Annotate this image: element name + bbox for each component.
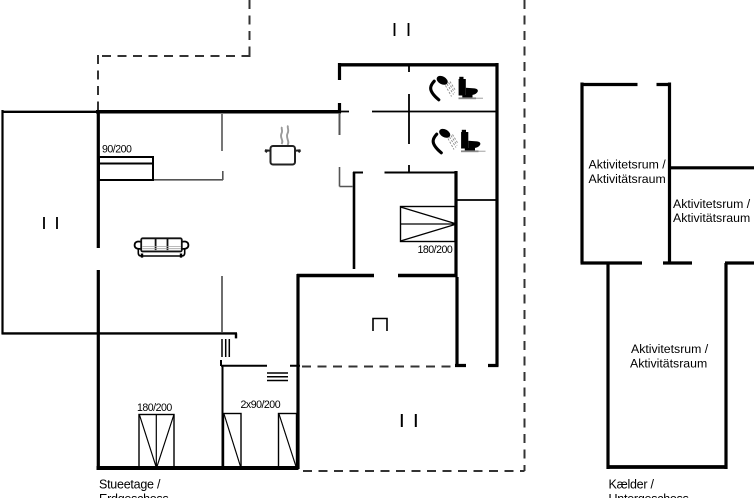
svg-text:Aktivitätsraum: Aktivitätsraum: [589, 172, 666, 186]
svg-text:Aktivitetsrum /: Aktivitetsrum /: [589, 158, 667, 172]
svg-text:Aktivitätsraum: Aktivitätsraum: [630, 357, 707, 371]
svg-text:180/200: 180/200: [418, 244, 453, 256]
svg-text:90/200: 90/200: [102, 143, 132, 155]
svg-text:Erdgeschoss: Erdgeschoss: [99, 492, 169, 498]
svg-text:Aktivitätsraum: Aktivitätsraum: [673, 211, 750, 225]
svg-text:Untergeschoss: Untergeschoss: [609, 492, 689, 498]
svg-text:Aktivitetsrum /: Aktivitetsrum /: [631, 342, 709, 356]
svg-text:Stueetage /: Stueetage /: [99, 477, 161, 491]
svg-text:Kælder /: Kælder /: [609, 478, 655, 492]
svg-text:2x90/200: 2x90/200: [241, 399, 281, 411]
svg-text:Aktivitetsrum /: Aktivitetsrum /: [673, 197, 751, 211]
svg-text:180/200: 180/200: [137, 402, 172, 414]
